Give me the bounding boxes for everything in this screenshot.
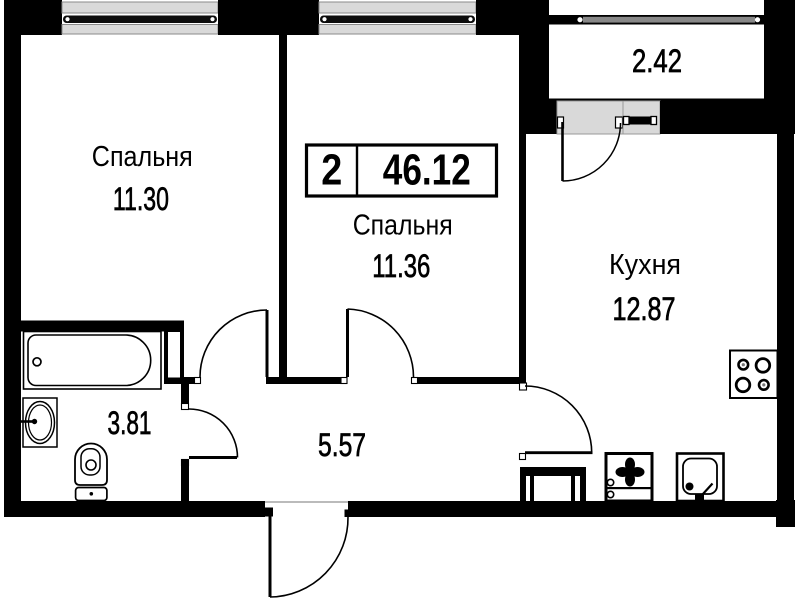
svg-text:2.42: 2.42 xyxy=(632,43,682,79)
svg-text:3.81: 3.81 xyxy=(108,405,152,441)
svg-text:Спальня: Спальня xyxy=(92,141,193,173)
svg-text:12.87: 12.87 xyxy=(613,291,676,327)
svg-text:46.12: 46.12 xyxy=(383,146,471,195)
svg-text:Кухня: Кухня xyxy=(609,249,681,281)
svg-text:11.30: 11.30 xyxy=(113,181,169,217)
svg-text:Спальня: Спальня xyxy=(353,210,453,242)
svg-text:11.36: 11.36 xyxy=(372,248,430,284)
svg-text:5.57: 5.57 xyxy=(318,427,366,463)
svg-text:2: 2 xyxy=(321,146,342,195)
